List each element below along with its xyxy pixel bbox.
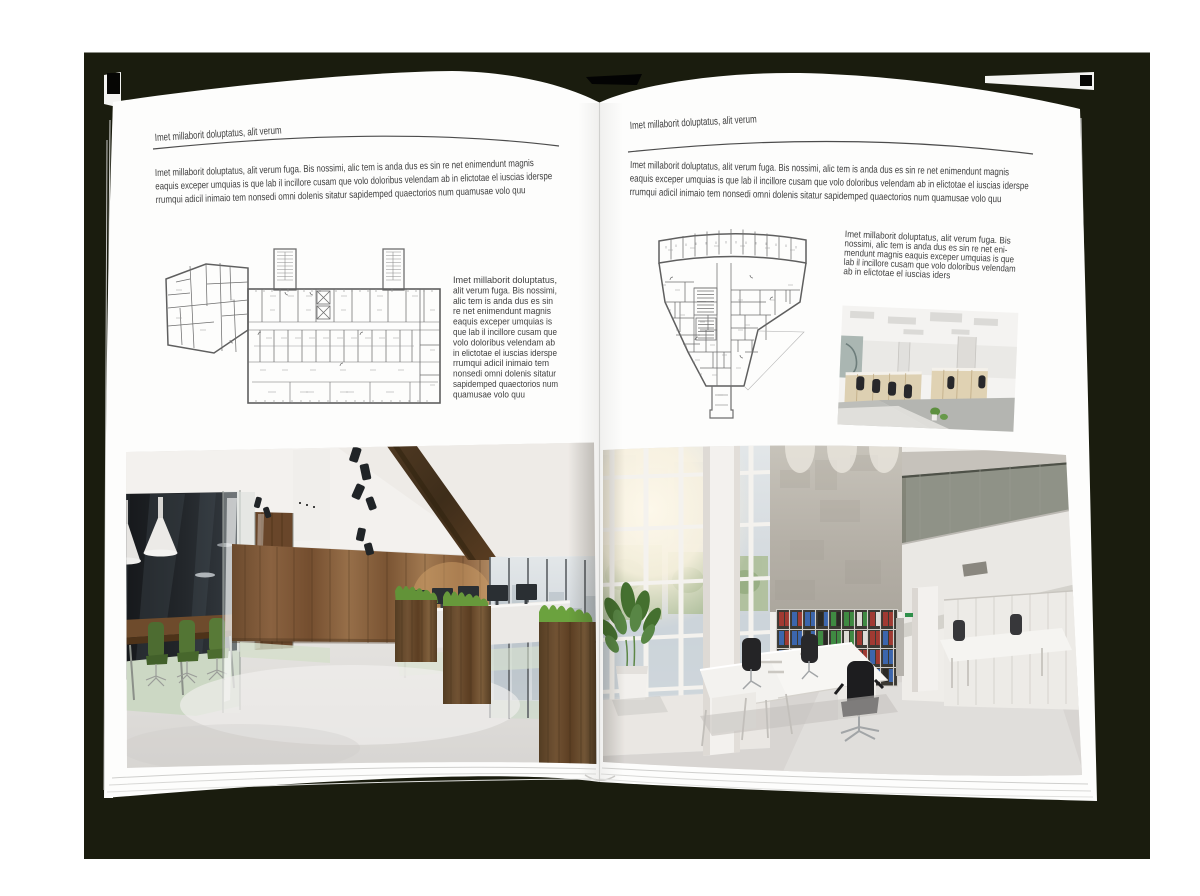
svg-text:sapidemped quaectorios num: sapidemped quaectorios num: [453, 379, 558, 389]
svg-text:rrumqui adicil inimaio tem: rrumqui adicil inimaio tem: [453, 358, 549, 368]
svg-text:volo doloribus velendam ab: volo doloribus velendam ab: [453, 337, 555, 347]
svg-text:alit verum fuga. Bis nossimi,: alit verum fuga. Bis nossimi,: [453, 285, 557, 295]
svg-text:quamusae volo quu: quamusae volo quu: [453, 389, 525, 399]
svg-text:in elictotae el iuscias idersp: in elictotae el iuscias iderspe: [453, 348, 557, 358]
svg-text:re net enimendunt magnis: re net enimendunt magnis: [453, 306, 551, 316]
svg-text:alic tem is anda dus es sin: alic tem is anda dus es sin: [453, 296, 553, 306]
svg-text:Imet millaborit doluptatus,: Imet millaborit doluptatus,: [453, 275, 557, 285]
svg-text:nonsedi omni dolenis sitatur: nonsedi omni dolenis sitatur: [453, 369, 556, 379]
svg-text:eaquis exceper umquias is: eaquis exceper umquias is: [453, 317, 552, 327]
svg-text:que lab il incillore cusam que: que lab il incillore cusam que: [453, 327, 557, 337]
